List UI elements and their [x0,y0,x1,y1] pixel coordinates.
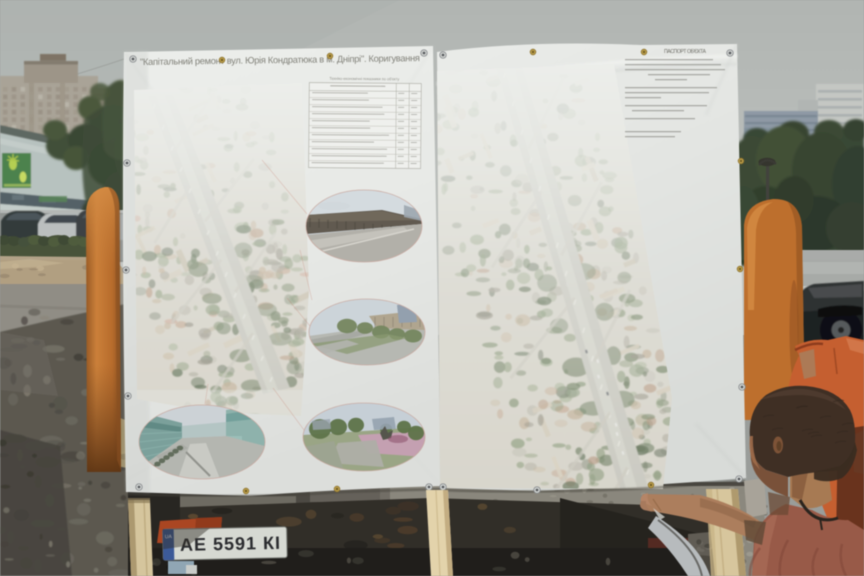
svg-text:ПАСПОРТ ОБ'ЄКТА: ПАСПОРТ ОБ'ЄКТА [664,49,707,55]
svg-text:Техніко-економічні показники п: Техніко-економічні показники по об'єкту [329,77,399,82]
